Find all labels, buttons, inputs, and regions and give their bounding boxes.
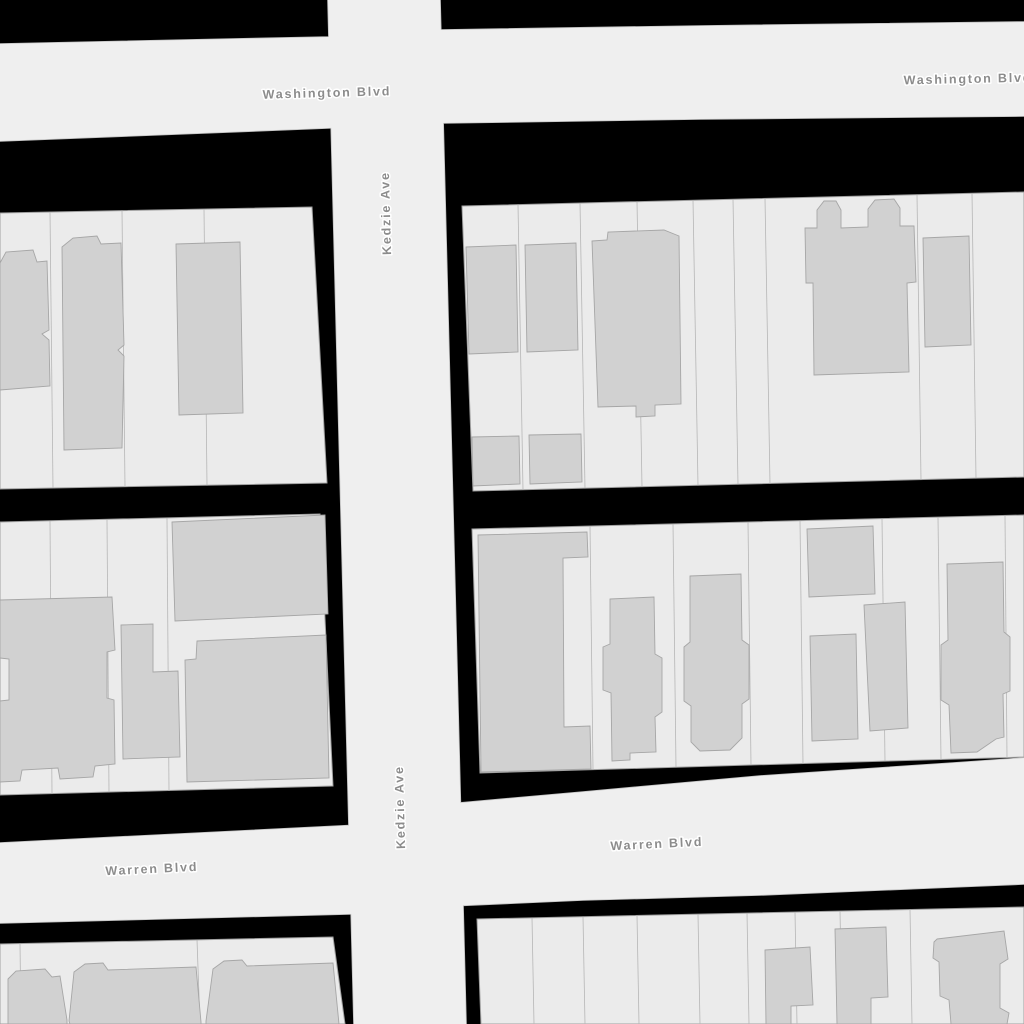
street-label-kedzie-ave-north: Kedzie Ave [378,171,394,255]
building [807,526,875,597]
building [206,960,339,1024]
building [592,230,681,417]
building [684,574,749,751]
building [525,243,578,352]
building [923,236,971,347]
building [529,434,582,484]
building [466,245,518,354]
building [864,602,908,731]
map-svg: Washington Blvd Washington Blvd Kedzie A… [0,0,1024,1024]
road-warren-blvd-west [0,822,424,923]
building [69,963,201,1024]
street-label-washington-blvd-east: Washington Blvd [903,71,1024,88]
building [185,635,329,782]
building [0,250,50,390]
building [941,562,1010,753]
building [603,597,662,761]
road-warren-blvd-east [448,758,1024,906]
building [472,436,520,486]
road-washington-blvd [0,22,1024,141]
building [172,515,328,621]
building [62,236,124,450]
building [176,242,243,415]
building [0,597,115,782]
street-label-kedzie-ave-south: Kedzie Ave [392,765,408,849]
building [810,634,858,741]
map-canvas[interactable]: Washington Blvd Washington Blvd Kedzie A… [0,0,1024,1024]
building [8,969,67,1024]
